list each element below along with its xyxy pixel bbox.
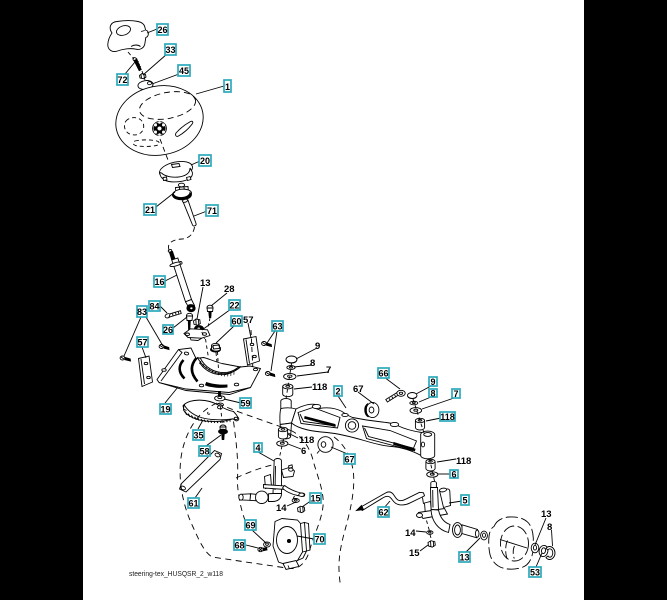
svg-text:6: 6	[301, 446, 306, 457]
svg-text:118: 118	[312, 382, 327, 393]
svg-text:9: 9	[430, 377, 435, 387]
svg-text:2: 2	[335, 387, 340, 397]
svg-text:118: 118	[299, 435, 314, 446]
svg-text:57: 57	[243, 315, 254, 326]
svg-text:8: 8	[310, 358, 315, 369]
svg-text:15: 15	[409, 548, 420, 559]
svg-text:57: 57	[137, 338, 147, 348]
svg-text:1: 1	[225, 82, 230, 92]
svg-text:28: 28	[224, 284, 235, 295]
svg-text:118: 118	[440, 412, 455, 422]
svg-text:84: 84	[149, 302, 159, 312]
svg-text:70: 70	[314, 535, 324, 545]
svg-text:8: 8	[547, 522, 552, 533]
svg-text:35: 35	[193, 431, 203, 441]
svg-text:8: 8	[430, 389, 435, 399]
svg-text:7: 7	[326, 365, 331, 376]
svg-text:13: 13	[459, 553, 469, 563]
svg-text:72: 72	[117, 75, 127, 85]
svg-text:13: 13	[541, 509, 552, 520]
svg-text:22: 22	[229, 301, 239, 311]
svg-text:45: 45	[179, 66, 189, 76]
svg-text:66: 66	[378, 369, 388, 379]
svg-text:58: 58	[199, 447, 209, 457]
svg-text:69: 69	[245, 521, 255, 531]
svg-text:26: 26	[163, 325, 173, 335]
svg-text:60: 60	[231, 317, 241, 327]
svg-text:62: 62	[378, 508, 388, 518]
svg-text:5: 5	[462, 496, 467, 506]
svg-text:7: 7	[453, 389, 458, 399]
svg-text:63: 63	[272, 322, 282, 332]
svg-text:steering-tex_HUSQSR_2_w118: steering-tex_HUSQSR_2_w118	[129, 569, 223, 578]
svg-text:9: 9	[315, 341, 320, 352]
svg-text:15: 15	[310, 494, 320, 504]
svg-text:53: 53	[530, 568, 540, 578]
svg-text:67: 67	[353, 384, 364, 395]
svg-text:71: 71	[207, 206, 217, 216]
svg-text:68: 68	[234, 541, 244, 551]
svg-text:14: 14	[276, 503, 287, 514]
svg-text:33: 33	[165, 45, 175, 55]
svg-text:118: 118	[456, 456, 471, 467]
svg-text:59: 59	[240, 399, 250, 409]
svg-text:21: 21	[145, 205, 155, 215]
svg-text:14: 14	[405, 528, 416, 539]
svg-text:19: 19	[160, 405, 170, 415]
svg-text:16: 16	[154, 277, 164, 287]
svg-text:61: 61	[188, 499, 198, 509]
svg-text:20: 20	[200, 156, 210, 166]
svg-text:67: 67	[344, 455, 354, 465]
svg-text:4: 4	[255, 443, 260, 453]
svg-text:83: 83	[137, 307, 147, 317]
svg-text:6: 6	[451, 470, 456, 480]
svg-text:13: 13	[200, 278, 211, 289]
svg-text:26: 26	[157, 25, 167, 35]
